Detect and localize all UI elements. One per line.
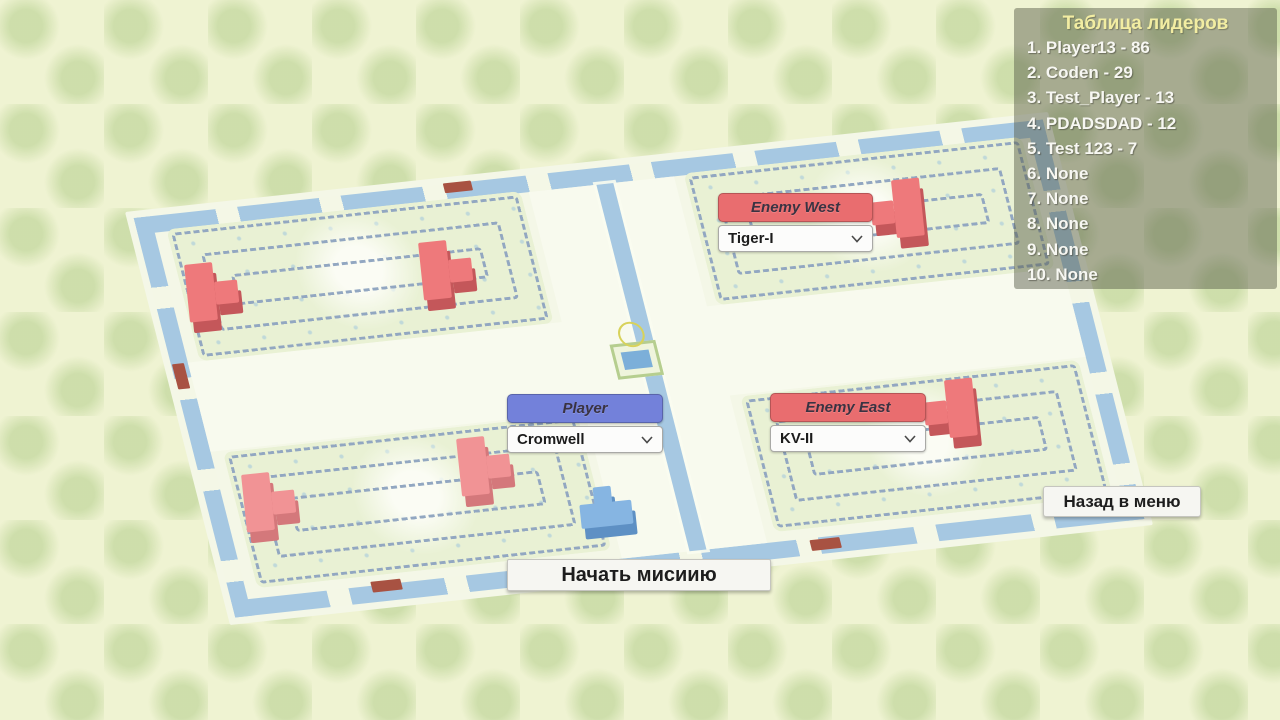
player-tank [575, 481, 642, 539]
player-tank-select[interactable]: Cromwell [507, 426, 663, 453]
mission-setup-screen: Enemy West Tiger-I Player Cromwell Enemy… [0, 0, 1280, 720]
enemy-west-selected-tank: Tiger-I [728, 230, 774, 247]
enemy-tank-northwest [416, 235, 480, 322]
enemy-tank-southwest [239, 467, 303, 554]
chevron-down-icon [851, 235, 863, 243]
leaderboard-entry: 6. None [1014, 161, 1277, 186]
enemy-east-panel: Enemy East KV-II [770, 393, 926, 452]
chevron-down-icon [641, 436, 653, 444]
player-header: Player [507, 394, 663, 423]
leaderboard-entry: 8. None [1014, 211, 1277, 236]
leaderboard-entry: 7. None [1014, 186, 1277, 211]
leaderboard-entry: 1. Player13 - 86 [1014, 35, 1277, 60]
leaderboard-entry: 2. Coden - 29 [1014, 60, 1277, 85]
enemy-east-selected-tank: KV-II [780, 430, 813, 447]
leaderboard-entry: 4. PDADSDAD - 12 [1014, 111, 1277, 136]
enemy-west-header: Enemy West [718, 193, 873, 222]
back-to-menu-button[interactable]: Назад в меню [1043, 486, 1201, 517]
enemy-east-header: Enemy East [770, 393, 926, 422]
leaderboard-entry: 10. None [1014, 262, 1277, 287]
enemy-tank-northeast [865, 175, 929, 262]
enemy-west-panel: Enemy West Tiger-I [718, 193, 873, 252]
enemy-east-tank-select[interactable]: KV-II [770, 425, 926, 452]
leaderboard-entry: 3. Test_Player - 13 [1014, 85, 1277, 110]
leaderboard-entry: 9. None [1014, 237, 1277, 262]
leaderboard-title: Таблица лидеров [1014, 13, 1277, 35]
start-mission-button[interactable]: Начать мисиию [507, 559, 771, 591]
leaderboard-entry: 5. Test 123 - 7 [1014, 136, 1277, 161]
enemy-tank-east [918, 375, 982, 462]
enemy-tank-west-wall [182, 257, 246, 344]
player-panel: Player Cromwell [507, 394, 663, 453]
player-selected-tank: Cromwell [517, 431, 585, 448]
enemy-west-tank-select[interactable]: Tiger-I [718, 225, 873, 252]
leaderboard-panel: Таблица лидеров 1. Player13 - 86 2. Code… [1014, 8, 1277, 289]
chevron-down-icon [904, 435, 916, 443]
